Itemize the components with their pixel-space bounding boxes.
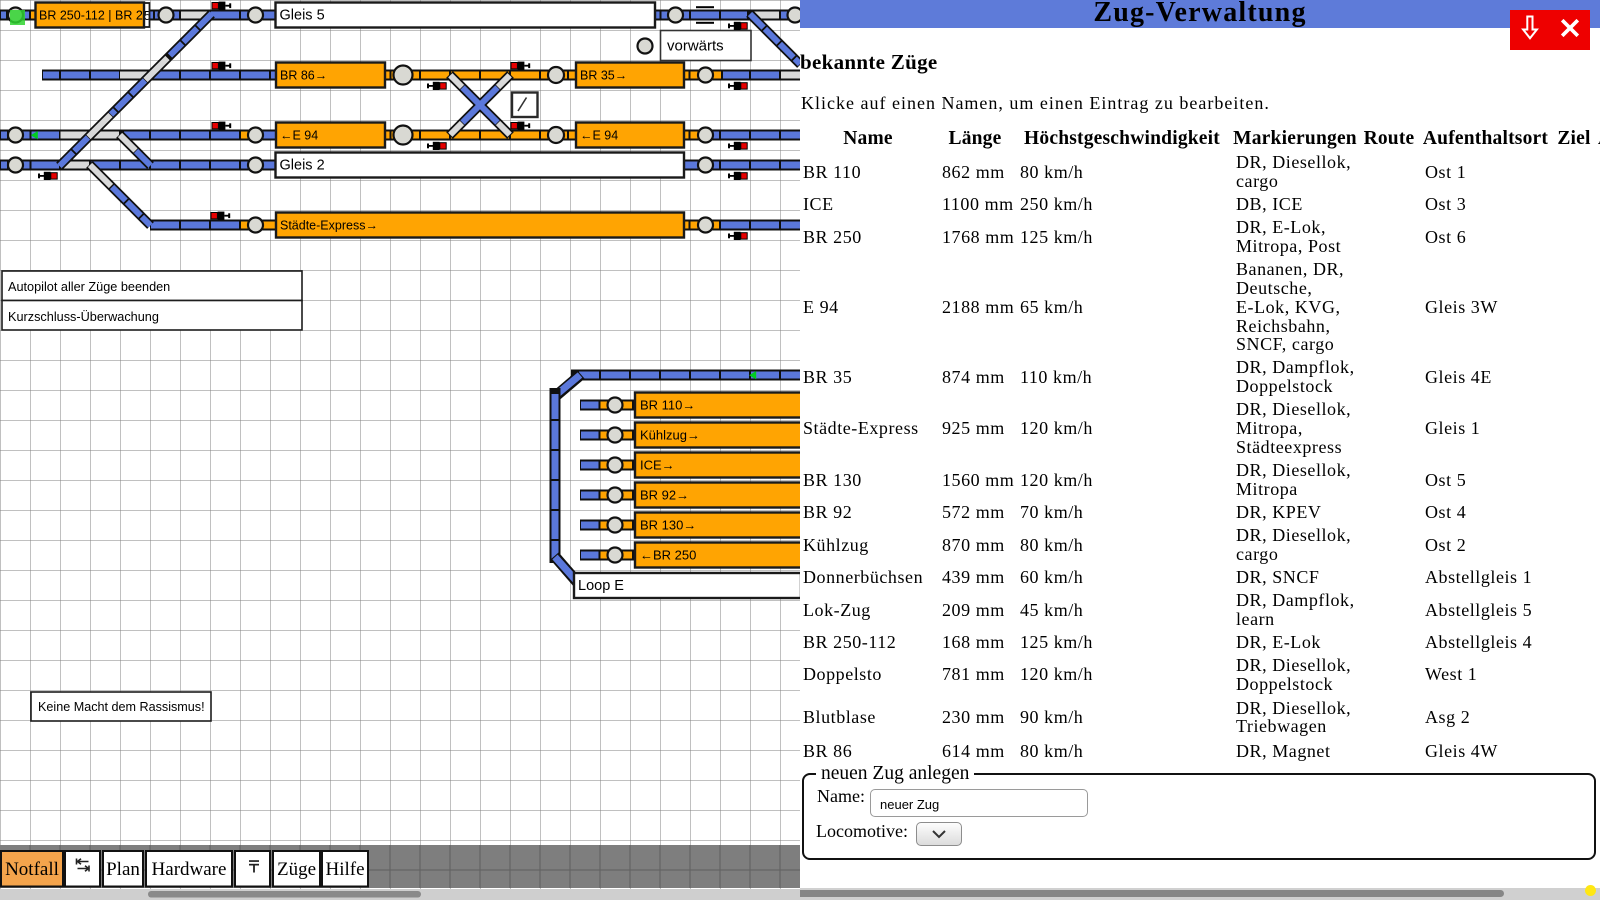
svg-text:BR 35→: BR 35→ bbox=[580, 69, 627, 83]
svg-text:←E 94: ←E 94 bbox=[280, 129, 318, 143]
svg-text:vorwärts: vorwärts bbox=[667, 38, 724, 55]
svg-text:BR 86→: BR 86→ bbox=[280, 69, 327, 83]
svg-text:Kühlzug→: Kühlzug→ bbox=[640, 428, 700, 443]
svg-text:Städte-Express→: Städte-Express→ bbox=[280, 219, 378, 233]
svg-text:←BR 250: ←BR 250 bbox=[640, 548, 696, 563]
svg-text:BR 130→: BR 130→ bbox=[640, 518, 696, 533]
svg-text:Hilfe: Hilfe bbox=[325, 859, 364, 880]
svg-text:Keine Macht dem Rassismus!: Keine Macht dem Rassismus! bbox=[38, 700, 205, 714]
svg-text:Notfall: Notfall bbox=[5, 859, 59, 880]
svg-text:Plan: Plan bbox=[106, 859, 140, 880]
svg-text:Züge: Züge bbox=[277, 859, 316, 880]
svg-text:BR 92→: BR 92→ bbox=[640, 488, 689, 503]
svg-text:ICE→: ICE→ bbox=[640, 458, 675, 473]
svg-text:Loop E: Loop E bbox=[578, 578, 624, 594]
svg-text:Gleis 2: Gleis 2 bbox=[280, 158, 325, 174]
svg-text:←E 94: ←E 94 bbox=[580, 129, 618, 143]
svg-text:Kurzschluss-Überwachung: Kurzschluss-Überwachung bbox=[8, 310, 159, 324]
svg-text:Autopilot aller Züge beenden: Autopilot aller Züge beenden bbox=[8, 280, 170, 294]
svg-text:BR 110→: BR 110→ bbox=[640, 398, 695, 413]
svg-text:Hardware: Hardware bbox=[152, 859, 227, 880]
svg-text:Gleis 5: Gleis 5 bbox=[280, 8, 325, 24]
svg-text:BR 250-112 | BR 250: BR 250-112 | BR 250 bbox=[39, 9, 157, 23]
